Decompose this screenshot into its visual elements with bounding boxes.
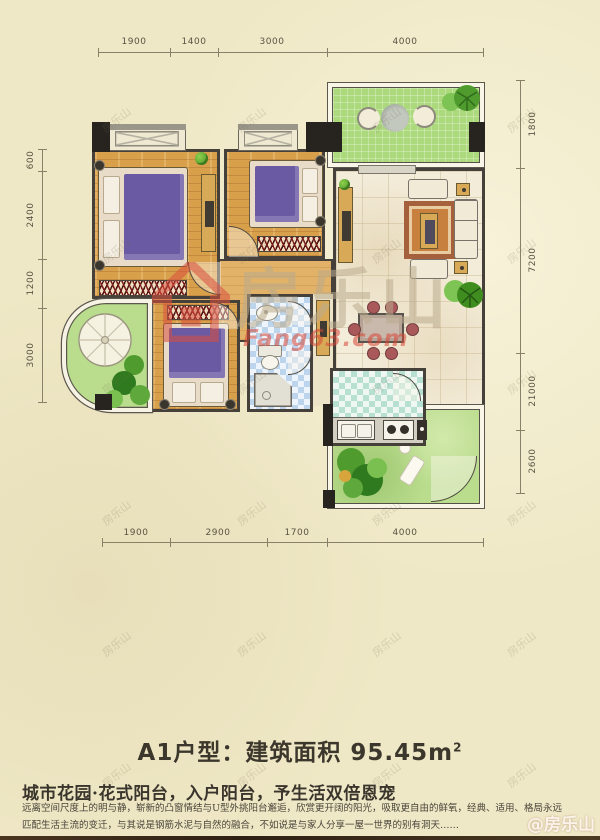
plan-title-sup: 2 <box>453 740 462 754</box>
site-watermark-text: Fang63.com <box>243 326 409 352</box>
entry-door-arc <box>431 456 477 502</box>
dim-label-top-2: 3000 <box>260 37 285 47</box>
dim-label-left-1: 2400 <box>26 203 36 228</box>
dim-label-left-2: 1200 <box>26 271 36 296</box>
roof-garden-tree-icon <box>437 84 481 124</box>
small-watermark: 房乐山 <box>99 628 135 661</box>
bedside-lamp <box>94 160 105 171</box>
column <box>469 122 485 152</box>
dim-label-bottom-3: 4000 <box>393 528 418 538</box>
roof-garden-balcony <box>327 82 485 168</box>
description-line-2: 匹配生活主流的变迁，与其说是钢筋水泥与自然的融合，不如说是与家人分享一屋一世界的… <box>22 817 567 831</box>
plant-icon <box>195 152 208 165</box>
bedside-lamp <box>225 399 236 410</box>
side-table-bottom <box>454 261 468 274</box>
patio-chair-right <box>413 105 436 128</box>
dim-label-left-0: 600 <box>26 151 36 170</box>
kitchen-counter <box>333 417 423 443</box>
plant-icon <box>339 179 350 190</box>
column <box>323 404 333 446</box>
door-arc <box>288 351 312 375</box>
description-line-1: 远离空间尺度上的明与静，崭新的凸窗情结与U型外挑阳台邂逅，欣赏更开阔的阳光，吸取… <box>22 800 567 814</box>
brand-logo-watermark <box>152 262 230 342</box>
coffee-table <box>420 213 438 249</box>
balcony-step <box>358 165 416 174</box>
plan-title: A1户型：建筑面积 95.45m2 <box>0 733 600 767</box>
dim-label-top-1: 1400 <box>182 37 207 47</box>
dresser <box>201 174 216 252</box>
bottom-border <box>0 836 600 840</box>
sofa <box>454 199 478 259</box>
dim-label-bottom-1: 2900 <box>206 528 231 538</box>
bedside-lamp <box>159 399 170 410</box>
small-watermark: 房乐山 <box>234 628 270 661</box>
small-watermark: 房乐山 <box>369 628 405 661</box>
bay-window-1 <box>108 124 186 151</box>
dim-label-top-3: 4000 <box>393 37 418 47</box>
side-table-top <box>456 183 470 196</box>
garden-trees-icon <box>333 438 403 506</box>
dim-label-left-3: 3000 <box>26 343 36 368</box>
floorplan-page: 1900 1400 3000 4000 1900 2900 1700 4000 … <box>0 0 600 840</box>
dim-label-right-3: 2600 <box>528 449 538 474</box>
roof-garden-floor <box>332 87 480 163</box>
dim-label-bottom-0: 1900 <box>124 528 149 538</box>
bedside-lamp <box>315 216 326 227</box>
column <box>306 122 342 152</box>
credit-watermark: @房乐山 <box>527 810 595 835</box>
stove <box>383 420 414 440</box>
kitchen-sink <box>337 420 375 440</box>
column <box>323 490 335 508</box>
kitchen-appliance <box>417 420 427 440</box>
dim-label-bottom-2: 1700 <box>285 528 310 538</box>
dim-label-top-0: 1900 <box>122 37 147 47</box>
plan-title-text: A1户型：建筑面积 95.45m <box>138 740 454 766</box>
small-watermark: 房乐山 <box>504 628 540 661</box>
bed <box>249 160 323 228</box>
armchair-top <box>408 179 448 199</box>
toilet-bowl <box>261 355 279 370</box>
bedside-lamp <box>315 155 326 166</box>
